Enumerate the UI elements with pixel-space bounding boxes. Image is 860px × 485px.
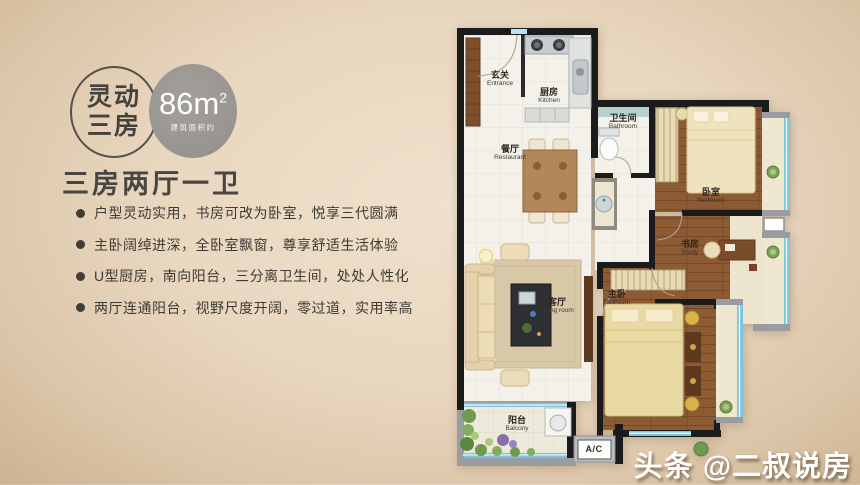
bullet-icon — [76, 209, 85, 218]
washbasin — [592, 178, 617, 230]
entrance-wardrobe — [466, 38, 480, 126]
room-label-entrance: 玄关Entrance — [487, 70, 513, 88]
ac-label: A/C — [586, 444, 603, 454]
badge-type-line1: 灵动 — [87, 83, 141, 113]
living-room-furniture — [465, 244, 593, 386]
feature-item: U型厨房，南向阳台，三分离卫生间，处处人性化 — [76, 266, 413, 286]
floorplan: 玄关Entrance 厨房Kitchen 卫生间Bathroom 餐厅Resta… — [453, 12, 793, 472]
page-title: 三房两厅一卫 — [62, 162, 242, 201]
room-label-master: 主卧Bedroom — [604, 289, 630, 307]
room-label-living: 客厅Living room — [540, 297, 574, 315]
page: 灵动 三房 86m2 建筑面积约 三房两厅一卫 户型灵动实用，书房可改为卧室，悦… — [0, 0, 860, 484]
watermark: 头条 @二叔说房 — [634, 443, 852, 485]
room-label-kitchen: 厨房Kitchen — [538, 87, 560, 105]
area-note: 建筑面积约 — [171, 122, 216, 133]
bullet-icon — [76, 240, 85, 249]
room-label-bathroom: 卫生间Bathroom — [609, 113, 637, 131]
dining-table — [523, 139, 577, 223]
room-label-restaurant: 餐厅Restaurant — [494, 144, 526, 162]
badge-area: 86m2 建筑面积约 — [149, 64, 237, 158]
feature-item: 主卧阔绰进深，全卧室飘窗，尊享舒适生活体验 — [76, 235, 413, 255]
badge-layout-type: 灵动 三房 — [70, 66, 158, 158]
feature-list: 户型灵动实用，书房可改为卧室，悦享三代圆满 主卧阔绰进深，全卧室飘窗，尊享舒适生… — [76, 203, 413, 329]
toilet — [599, 128, 619, 160]
feature-item: 户型灵动实用，书房可改为卧室，悦享三代圆满 — [76, 203, 413, 223]
badge-type-line2: 三房 — [87, 112, 141, 142]
bedroom-furniture — [656, 107, 755, 193]
bullet-icon — [76, 303, 85, 312]
washing-machine — [545, 408, 571, 436]
bullet-icon — [76, 272, 85, 281]
area-value: 86m2 — [159, 89, 227, 119]
room-label-study: 书房Study — [681, 239, 699, 257]
room-label-balcony: 阳台Balcony — [505, 415, 528, 433]
feature-item: 两厅连通阳台，视野尺度开阔，零过道，实用率高 — [76, 298, 413, 318]
room-label-bedroom: 卧室Bedroom — [698, 187, 724, 205]
